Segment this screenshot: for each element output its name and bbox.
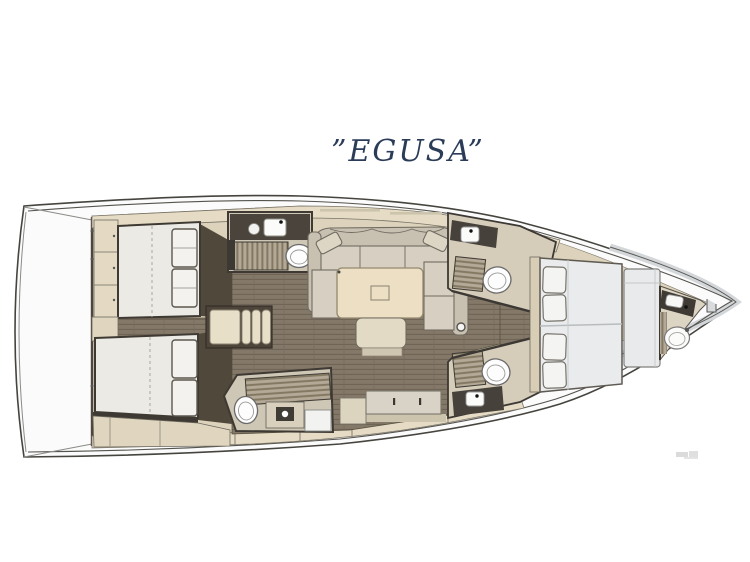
- pillow: [543, 295, 567, 322]
- pillow: [172, 380, 197, 416]
- shower-grate: [234, 242, 288, 270]
- step: [252, 310, 261, 344]
- pillow: [543, 362, 567, 389]
- pillow: [172, 340, 197, 378]
- step: [262, 310, 271, 344]
- sink: [282, 411, 288, 417]
- yacht-floor-plan: [0, 0, 750, 562]
- sink: [665, 294, 684, 308]
- faucet: [475, 394, 478, 397]
- sink: [466, 392, 484, 406]
- cabinet: [305, 410, 331, 431]
- shower-grate: [452, 257, 485, 292]
- sink: [461, 227, 479, 242]
- step-landing: [210, 310, 240, 344]
- aft-head-starboard: [224, 368, 333, 432]
- pillow: [543, 334, 567, 361]
- faucet: [469, 229, 472, 232]
- pillow: [543, 267, 567, 294]
- forward-cabin: [530, 257, 660, 392]
- handle: [393, 398, 395, 405]
- handle: [419, 398, 421, 405]
- faucet: [279, 220, 283, 224]
- shower-grate: [245, 373, 331, 405]
- step: [242, 310, 251, 344]
- companionway-steps: [206, 306, 272, 348]
- headboard: [530, 257, 540, 392]
- watermark-mark: [676, 451, 698, 459]
- aft-head-port: [228, 212, 312, 272]
- faucet: [684, 305, 688, 309]
- mast-post: [457, 323, 465, 331]
- ottoman: [356, 318, 406, 348]
- sofa-seats-left: [312, 270, 340, 318]
- yacht-plan-page: ”EGUSA”: [0, 0, 750, 562]
- salon-table: [337, 268, 423, 318]
